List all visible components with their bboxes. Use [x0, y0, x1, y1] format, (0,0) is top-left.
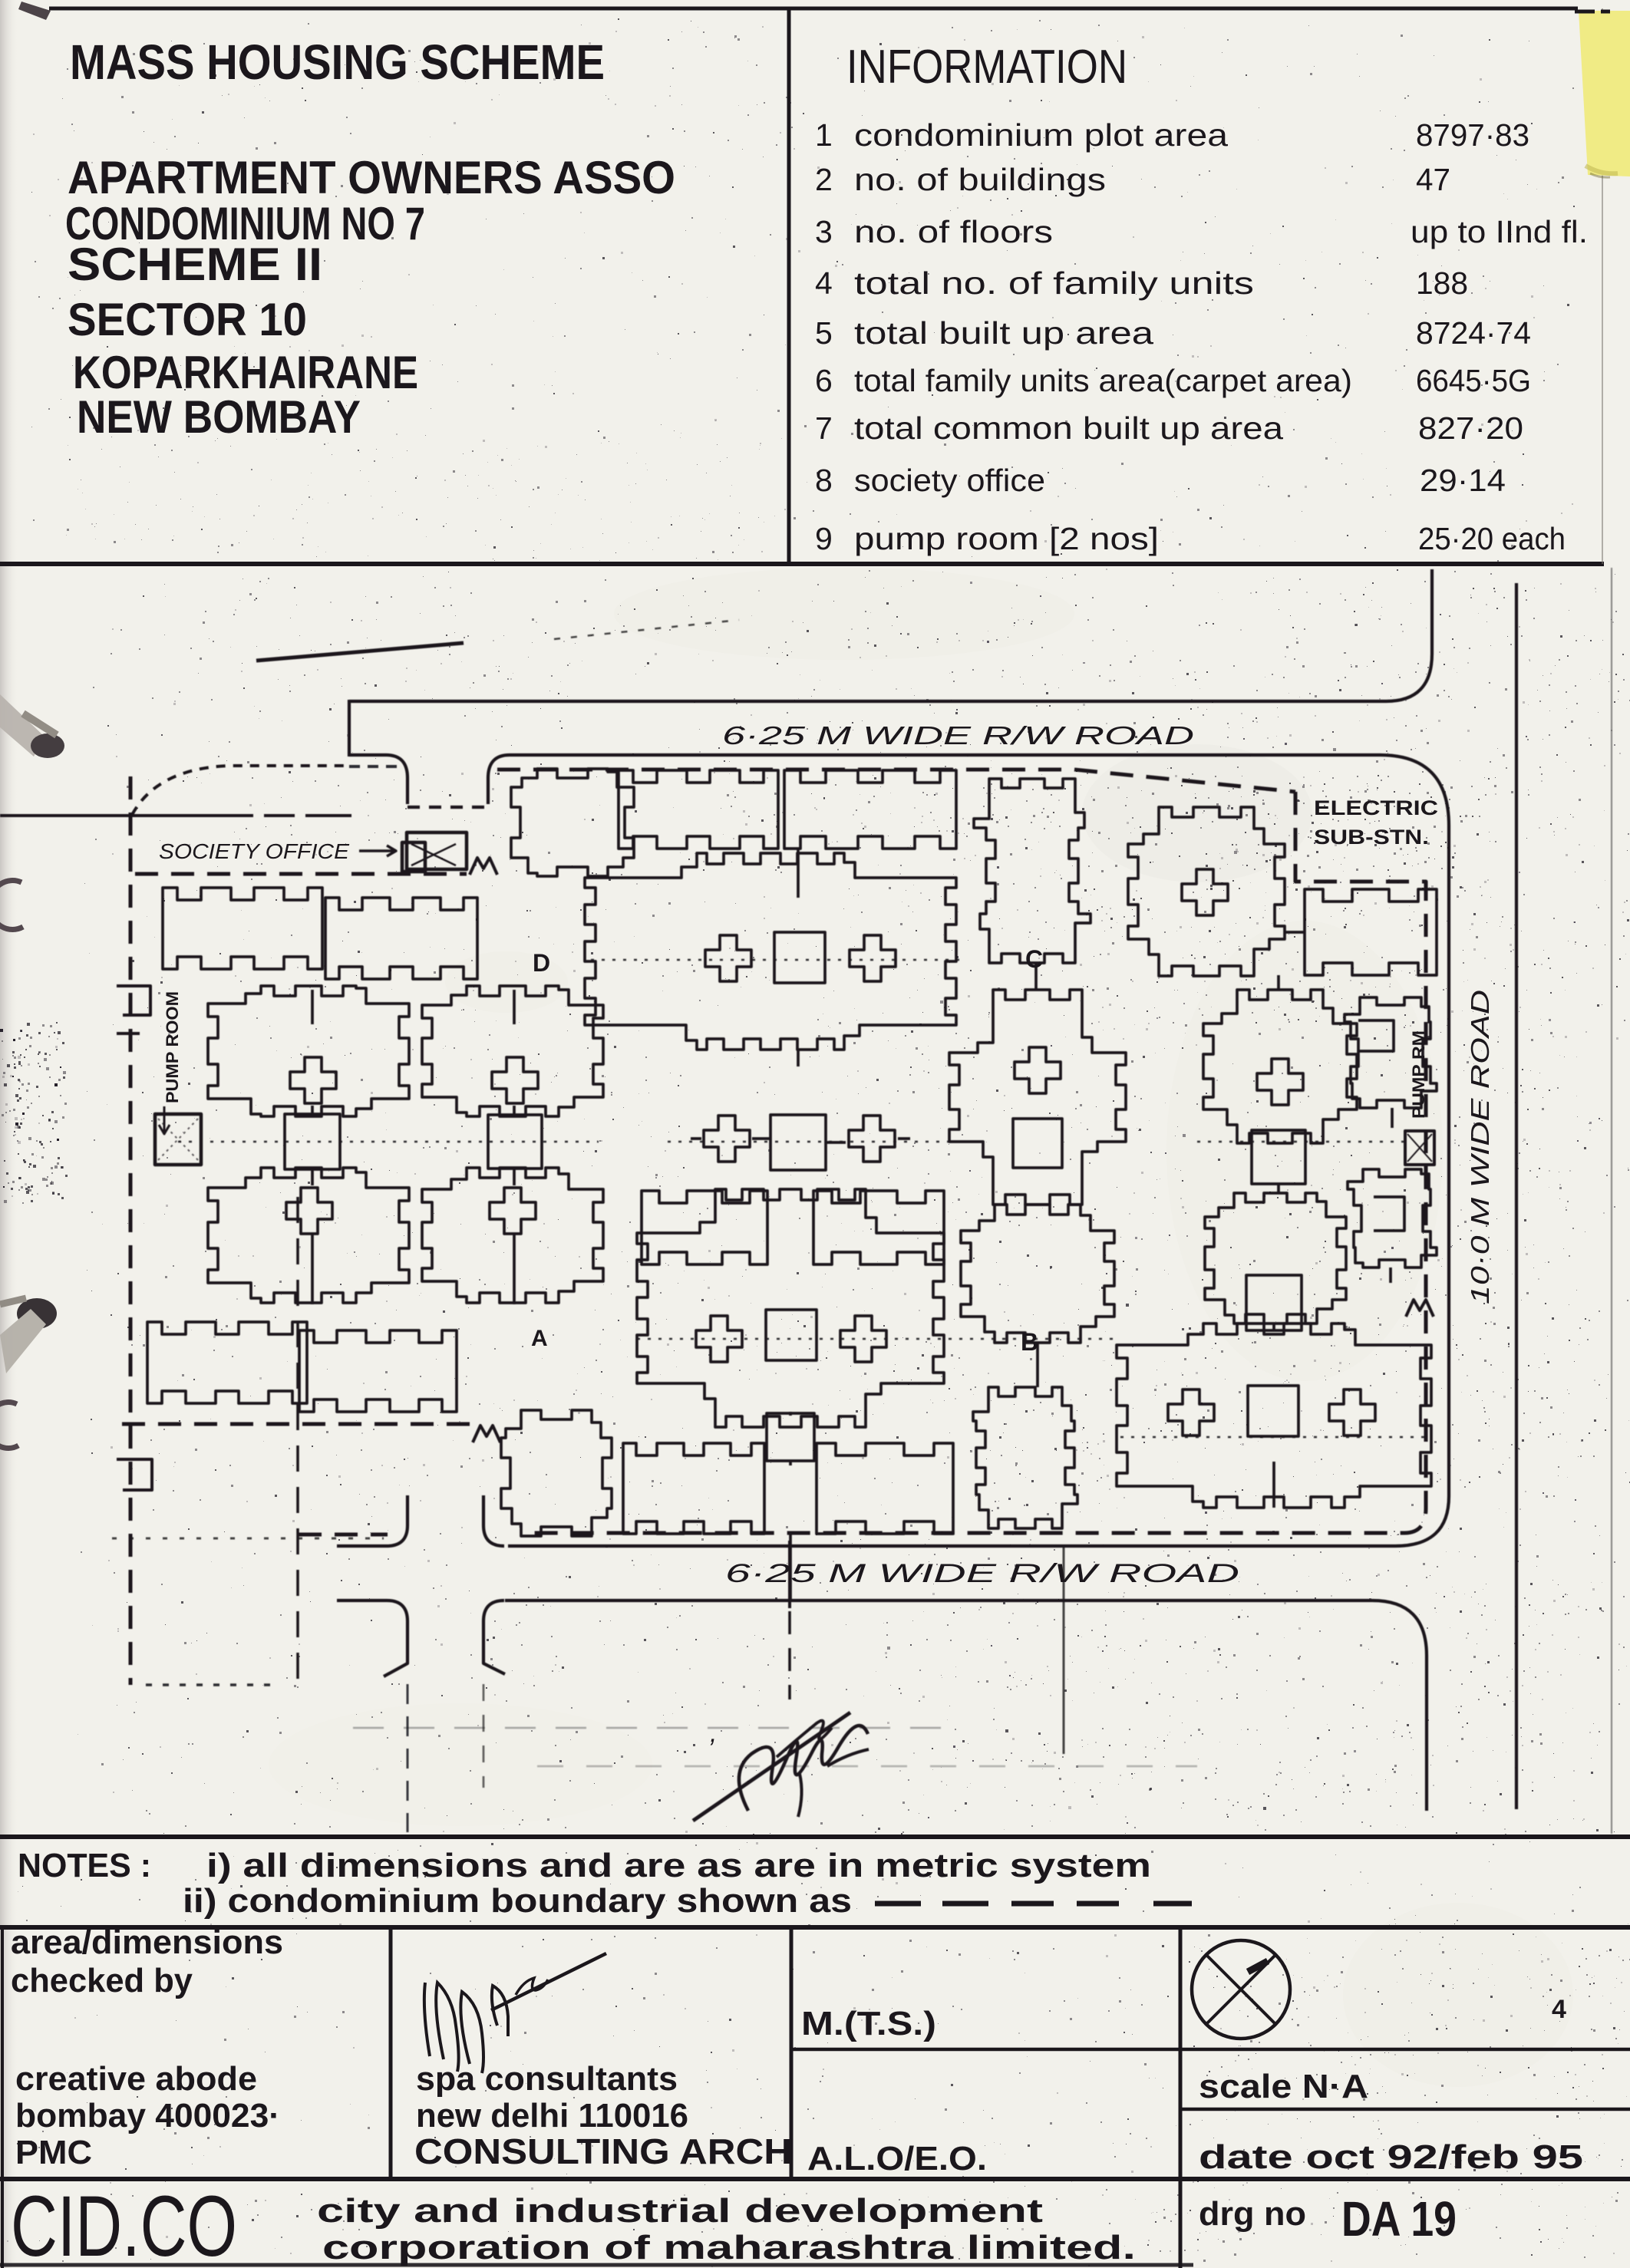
svg-text:pump room [2 nos]: pump room [2 nos] [854, 521, 1159, 556]
svg-text:SCHEME II: SCHEME II [68, 239, 322, 290]
svg-text:CONSULTING ARCH: CONSULTING ARCH [414, 2131, 792, 2171]
svg-text:city and industrial d: city and industrial development [317, 2192, 1043, 2230]
svg-text:SOCIETY OFFICE: SOCIETY OFFICE [159, 839, 349, 863]
svg-text:6645·5G: 6645·5G [1416, 363, 1531, 398]
svg-text:total family units area(carpet: total family units area(carpet area) [854, 363, 1352, 398]
svg-text:B: B [1021, 1328, 1038, 1356]
svg-text:checked by: checked by [11, 1962, 193, 1999]
svg-text:8: 8 [815, 463, 833, 498]
svg-text:i) all dimensions and are: i) all dimensions and are as are in metr… [206, 1847, 1151, 1884]
svg-text:2: 2 [815, 162, 833, 197]
svg-text:47: 47 [1416, 162, 1450, 197]
svg-text:condominium plot area: condominium plot area [854, 117, 1228, 153]
svg-text:APARTMENT OWNERS ASSO: APARTMENT OWNERS ASSO [68, 152, 675, 203]
svg-text:SUB-STN.: SUB-STN. [1314, 826, 1429, 849]
svg-text:date oct 92/feb 95: date oct 92/feb 95 [1199, 2138, 1583, 2176]
svg-text:INFORMATION: INFORMATION [846, 41, 1127, 94]
svg-text:SECTOR 10: SECTOR 10 [68, 294, 307, 345]
svg-text:ii) condominium boundary: ii) condominium boundary shown as [183, 1882, 852, 1920]
svg-text:8724·74: 8724·74 [1416, 315, 1531, 351]
svg-text:A: A [531, 1326, 548, 1351]
svg-text:8797·83: 8797·83 [1416, 117, 1529, 153]
svg-text:D: D [533, 949, 550, 977]
svg-text:4: 4 [1552, 1995, 1566, 2024]
svg-text:KOPARKHAIRANE: KOPARKHAIRANE [73, 347, 418, 398]
svg-text:spa consultants: spa consultants [416, 2060, 678, 2098]
svg-text:scale N·A: scale N·A [1199, 2068, 1368, 2105]
svg-text:M.(T.S.): M.(T.S.) [801, 2005, 936, 2042]
svg-text:CID.CO: CID.CO [11, 2178, 237, 2268]
svg-text:NOTES :: NOTES : [18, 1847, 151, 1884]
svg-text:total no. of family units: total no. of family units [854, 265, 1254, 301]
svg-text:no. of floors: no. of floors [854, 214, 1053, 249]
svg-text:corporation of maharash: corporation of maharashtra limited. [322, 2229, 1136, 2266]
svg-text:ELECTRIC: ELECTRIC [1314, 796, 1438, 819]
svg-text:PUMP ROOM: PUMP ROOM [163, 991, 182, 1103]
svg-text:total built up area: total built up area [854, 315, 1153, 351]
svg-text:DA 19: DA 19 [1341, 2191, 1457, 2247]
svg-text:25·20 each: 25·20 each [1418, 521, 1566, 556]
svg-text:1: 1 [815, 117, 833, 153]
svg-text:4: 4 [815, 265, 833, 301]
svg-text:10·0 M WIDE ROAD: 10·0 M WIDE ROAD [1466, 990, 1494, 1304]
svg-text:188: 188 [1416, 265, 1468, 301]
svg-text:6: 6 [815, 363, 833, 398]
svg-text:6·25 M WIDE R/W ROAD: 6·25 M WIDE R/W ROAD [722, 721, 1194, 750]
svg-text:bombay 400023·: bombay 400023· [15, 2097, 280, 2134]
svg-text:3: 3 [815, 214, 833, 249]
svg-text:total common built up area: total common built up area [854, 410, 1283, 446]
svg-text:area/dimensions: area/dimensions [11, 1924, 283, 1961]
svg-text:no. of buildings: no. of buildings [854, 162, 1106, 197]
svg-text:A.L.O/E.O.: A.L.O/E.O. [807, 2140, 987, 2177]
svg-text:creative abode: creative abode [15, 2060, 257, 2098]
svg-text:827·20: 827·20 [1418, 410, 1523, 446]
svg-text:up to IInd fl.: up to IInd fl. [1411, 214, 1588, 249]
svg-text:7: 7 [815, 410, 833, 446]
svg-text:6·25 M WIDE R/W ROAD: 6·25 M WIDE R/W ROAD [725, 1559, 1239, 1588]
svg-text:9: 9 [815, 521, 833, 556]
svg-text:MASS HOUSING SCHEME: MASS HOUSING SCHEME [70, 35, 605, 90]
svg-text:C: C [1025, 945, 1043, 973]
svg-text:drg no: drg no [1199, 2195, 1306, 2233]
svg-text:PUMP RM: PUMP RM [1409, 1030, 1428, 1119]
svg-text:society office: society office [854, 463, 1045, 498]
svg-text:,: , [710, 1719, 717, 1748]
svg-text:PMC: PMC [15, 2134, 92, 2171]
svg-text:29·14: 29·14 [1420, 463, 1506, 498]
svg-text:NEW BOMBAY: NEW BOMBAY [77, 391, 361, 443]
svg-text:5: 5 [815, 315, 833, 351]
svg-text:new delhi 110016: new delhi 110016 [416, 2097, 688, 2134]
